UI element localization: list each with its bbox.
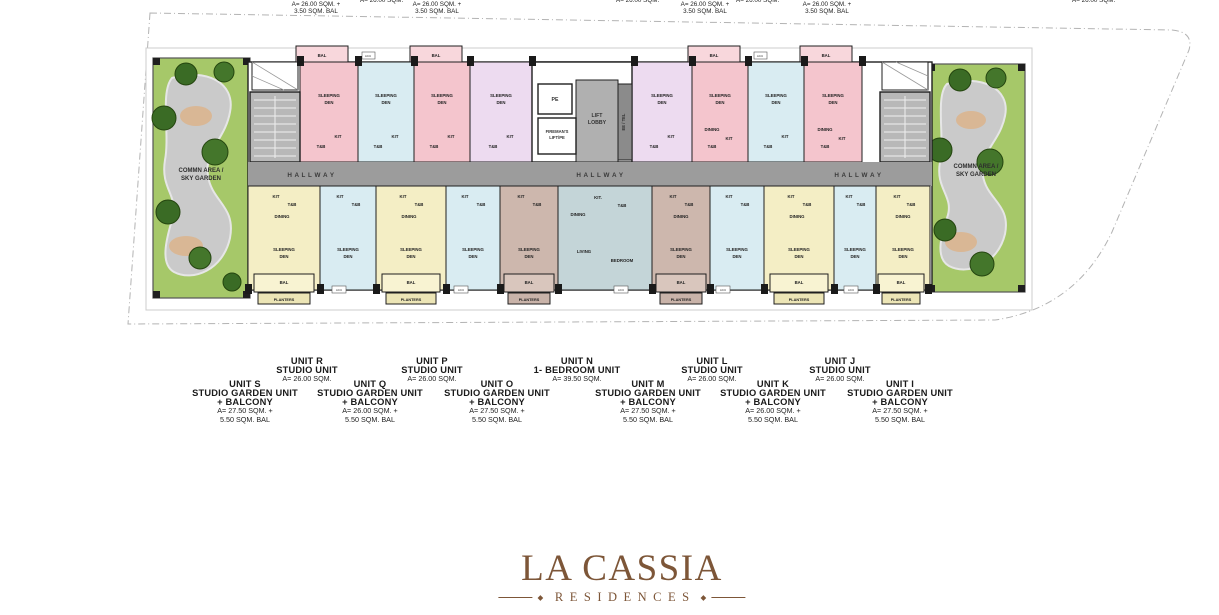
room-label: KIT: [335, 134, 342, 139]
tree-icon: [202, 139, 228, 165]
room-label: KIT: [894, 194, 901, 199]
room-label: SLEEPING: [709, 93, 731, 98]
room-label: DEN: [324, 100, 333, 105]
logo-dot-left: [538, 595, 544, 601]
garden-corner-column: [1018, 64, 1025, 71]
room-label: T&B: [288, 202, 297, 207]
room-label: DEN: [279, 254, 288, 259]
unit-studio-upper: [748, 62, 804, 162]
planters-label: PLANTERS: [401, 298, 422, 302]
room-label: SLEEPING: [651, 93, 673, 98]
fireman-lift-label: FIREMAN'S: [546, 129, 569, 134]
tree-icon: [156, 200, 180, 224]
room-label: T&B: [708, 144, 717, 149]
room-label: SLEEPING: [892, 247, 914, 252]
unit-studio-upper: [632, 62, 692, 162]
room-label: DEN: [657, 100, 666, 105]
room-label: T&B: [317, 144, 326, 149]
balcony-label: BAL: [407, 280, 416, 285]
planters-label: PLANTERS: [789, 298, 810, 302]
room-label: DEN: [794, 254, 803, 259]
room-label: DEN: [850, 254, 859, 259]
room-label: DEN: [343, 254, 352, 259]
room-label: DEN: [468, 254, 477, 259]
logo-rule-right: [712, 597, 746, 598]
tree-icon: [214, 62, 234, 82]
brand-logo: LA CASSIA RESIDENCES: [498, 552, 745, 605]
room-label: SLEEPING: [431, 93, 453, 98]
logo-title: LA CASSIA: [498, 552, 745, 586]
planters-label: PLANTERS: [671, 298, 692, 302]
room-label: SLEEPING: [375, 93, 397, 98]
room-label: T&B: [533, 202, 542, 207]
garden-soil-patch: [956, 111, 986, 129]
balcony-label: BAL: [318, 53, 327, 58]
room-label: DINING: [895, 214, 911, 219]
room-label: BEDROOM: [611, 258, 634, 263]
room-label: KIT: [839, 136, 846, 141]
room-label: SLEEPING: [822, 93, 844, 98]
room-label: T&B: [650, 144, 659, 149]
lift-lobby-label: LOBBY: [588, 120, 607, 126]
room-label: KIT: [462, 194, 469, 199]
room-label: KIT: [668, 134, 675, 139]
room-label: SLEEPING: [490, 93, 512, 98]
room-label: KIT: [846, 194, 853, 199]
logo-subtitle-row: RESIDENCES: [498, 590, 745, 605]
room-label: KIT: [670, 194, 677, 199]
room-label: SLEEPING: [400, 247, 422, 252]
room-label: T&B: [352, 202, 361, 207]
room-label: KIT: [518, 194, 525, 199]
room-label: KIT: [507, 134, 514, 139]
room-label: SLEEPING: [337, 247, 359, 252]
room-label: KIT: [726, 194, 733, 199]
tree-icon: [986, 68, 1006, 88]
acu-label: ACU: [336, 288, 342, 292]
room-label: DINING: [704, 127, 720, 132]
room-label: T&B: [803, 202, 812, 207]
unit-studio-upper: [358, 62, 414, 162]
room-label: DINING: [401, 214, 417, 219]
room-label: T&B: [415, 202, 424, 207]
room-label: DEN: [524, 254, 533, 259]
tree-icon: [189, 247, 211, 269]
room-label: KIT: [782, 134, 789, 139]
balcony-label: BAL: [897, 280, 906, 285]
unit-studio-lower: [446, 186, 500, 290]
garden-corner-column: [153, 291, 160, 298]
acu-label: ACU: [720, 288, 726, 292]
room-label: DINING: [570, 212, 586, 217]
room-label: KIT.: [594, 195, 602, 200]
unit-one-bedroom: [558, 186, 652, 290]
room-label: DEN: [898, 254, 907, 259]
room-label: T&B: [374, 144, 383, 149]
room-label: SLEEPING: [273, 247, 295, 252]
room-label: KIT: [400, 194, 407, 199]
room-label: T&B: [430, 144, 439, 149]
room-label: KIT: [448, 134, 455, 139]
tree-icon: [175, 63, 197, 85]
garden-corner-column: [1018, 285, 1025, 292]
acu-label: ACU: [848, 288, 854, 292]
room-label: DEN: [496, 100, 505, 105]
room-label: DINING: [274, 214, 290, 219]
room-label: LIVING: [577, 249, 592, 254]
garden-soil-patch: [180, 106, 212, 126]
room-label: SLEEPING: [318, 93, 340, 98]
planters-label: PLANTERS: [891, 298, 912, 302]
room-label: SLEEPING: [726, 247, 748, 252]
room-label: DEN: [381, 100, 390, 105]
balcony-label: BAL: [822, 53, 831, 58]
pe-label: PE: [552, 97, 559, 103]
unit-studio-lower: [834, 186, 876, 290]
hallway-label: H A L L W A Y: [576, 172, 623, 179]
garden-corner-column: [153, 58, 160, 65]
room-label: DEN: [715, 100, 724, 105]
common-area-label: SKY GARDEN: [181, 176, 221, 182]
room-label: DEN: [771, 100, 780, 105]
room-label: DEN: [676, 254, 685, 259]
room-label: KIT: [788, 194, 795, 199]
common-area-label: COMMN AREA /: [179, 168, 224, 174]
balcony-label: BAL: [677, 280, 686, 285]
room-label: SLEEPING: [844, 247, 866, 252]
room-label: T&B: [741, 202, 750, 207]
unit-studio-upper: [804, 62, 862, 162]
room-label: SLEEPING: [518, 247, 540, 252]
planters-label: PLANTERS: [274, 298, 295, 302]
room-label: DINING: [817, 127, 833, 132]
acu-label: ACU: [618, 288, 624, 292]
balcony-label: BAL: [280, 280, 289, 285]
hallway-label: H A L L W A Y: [834, 172, 881, 179]
common-area-label: COMMN AREA /: [954, 164, 999, 170]
acu-label: ACU: [458, 288, 464, 292]
room-label: T&B: [821, 144, 830, 149]
tree-icon: [934, 219, 956, 241]
room-label: SLEEPING: [765, 93, 787, 98]
balcony-label: BAL: [432, 53, 441, 58]
fireman-lift-label: LIFT/PE: [549, 135, 565, 140]
room-label: KIT: [337, 194, 344, 199]
logo-rule-left: [498, 597, 532, 598]
room-label: T&B: [618, 203, 627, 208]
tree-icon: [223, 273, 241, 291]
room-label: KIT: [726, 136, 733, 141]
unit-studio-upper: [414, 62, 470, 162]
room-label: DEN: [732, 254, 741, 259]
room-label: DINING: [673, 214, 689, 219]
room-label: DEN: [406, 254, 415, 259]
tree-icon: [152, 106, 176, 130]
logo-subtitle: RESIDENCES: [548, 590, 695, 605]
acu-label: ACU: [757, 54, 763, 58]
hallway-label: H A L L W A Y: [287, 172, 334, 179]
room-label: DINING: [789, 214, 805, 219]
floor-plan-page: + BALCONY A= 26.00 SQM. + 3.50 SQM. BAL …: [0, 0, 1219, 615]
unit-studio-upper: [470, 62, 532, 162]
legend-unit-i: UNIT I STUDIO GARDEN UNIT + BALCONY A= 2…: [790, 380, 1010, 424]
unit-area: 5.50 SQM. BAL: [790, 416, 1010, 425]
unit-studio-upper: [692, 62, 748, 162]
balcony-label: BAL: [710, 53, 719, 58]
room-label: SLEEPING: [462, 247, 484, 252]
room-label: KIT: [273, 194, 280, 199]
planters-label: PLANTERS: [519, 298, 540, 302]
room-label: T&B: [857, 202, 866, 207]
balcony-label: BAL: [525, 280, 534, 285]
room-label: DEN: [437, 100, 446, 105]
room-label: T&B: [477, 202, 486, 207]
room-label: T&B: [685, 202, 694, 207]
acu-label: ACU: [365, 54, 371, 58]
room-label: T&B: [489, 144, 498, 149]
unit-studio-upper: [300, 62, 358, 162]
room-label: T&B: [907, 202, 916, 207]
unit-studio-lower: [320, 186, 376, 290]
ee-tel-label: EE / TEL: [621, 113, 626, 130]
room-label: SLEEPING: [788, 247, 810, 252]
room-label: T&B: [764, 144, 773, 149]
logo-dot-right: [701, 595, 707, 601]
balcony-label: BAL: [795, 280, 804, 285]
room-label: DEN: [828, 100, 837, 105]
lift-lobby-label: LIFT: [592, 113, 604, 119]
unit-studio-lower: [710, 186, 764, 290]
tree-icon: [970, 252, 994, 276]
floor-plan-drawing: COMMN AREA / SKY GARDEN COMMN AREA / SKY…: [0, 0, 1219, 345]
common-area-label: SKY GARDEN: [956, 172, 996, 178]
room-label: SLEEPING: [670, 247, 692, 252]
room-label: KIT: [392, 134, 399, 139]
tree-icon: [949, 69, 971, 91]
